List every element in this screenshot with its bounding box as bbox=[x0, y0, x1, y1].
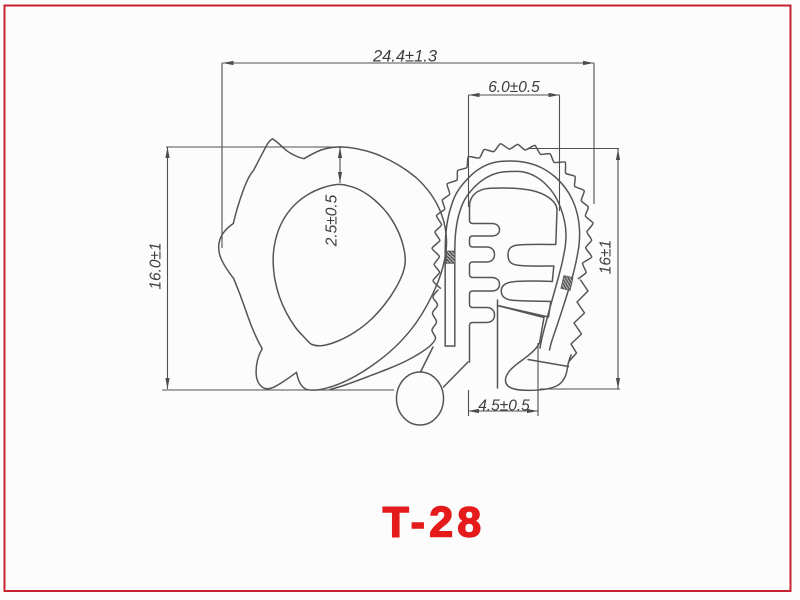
svg-text:6.0±0.5: 6.0±0.5 bbox=[488, 79, 540, 96]
svg-text:4.5±0.5: 4.5±0.5 bbox=[478, 398, 530, 415]
svg-text:T-28: T-28 bbox=[383, 499, 486, 547]
svg-text:24.4±1.3: 24.4±1.3 bbox=[372, 48, 438, 66]
svg-text:2.5±0.5: 2.5±0.5 bbox=[324, 194, 341, 247]
svg-text:16.0±1: 16.0±1 bbox=[148, 242, 165, 289]
svg-text:16±1: 16±1 bbox=[598, 240, 615, 274]
